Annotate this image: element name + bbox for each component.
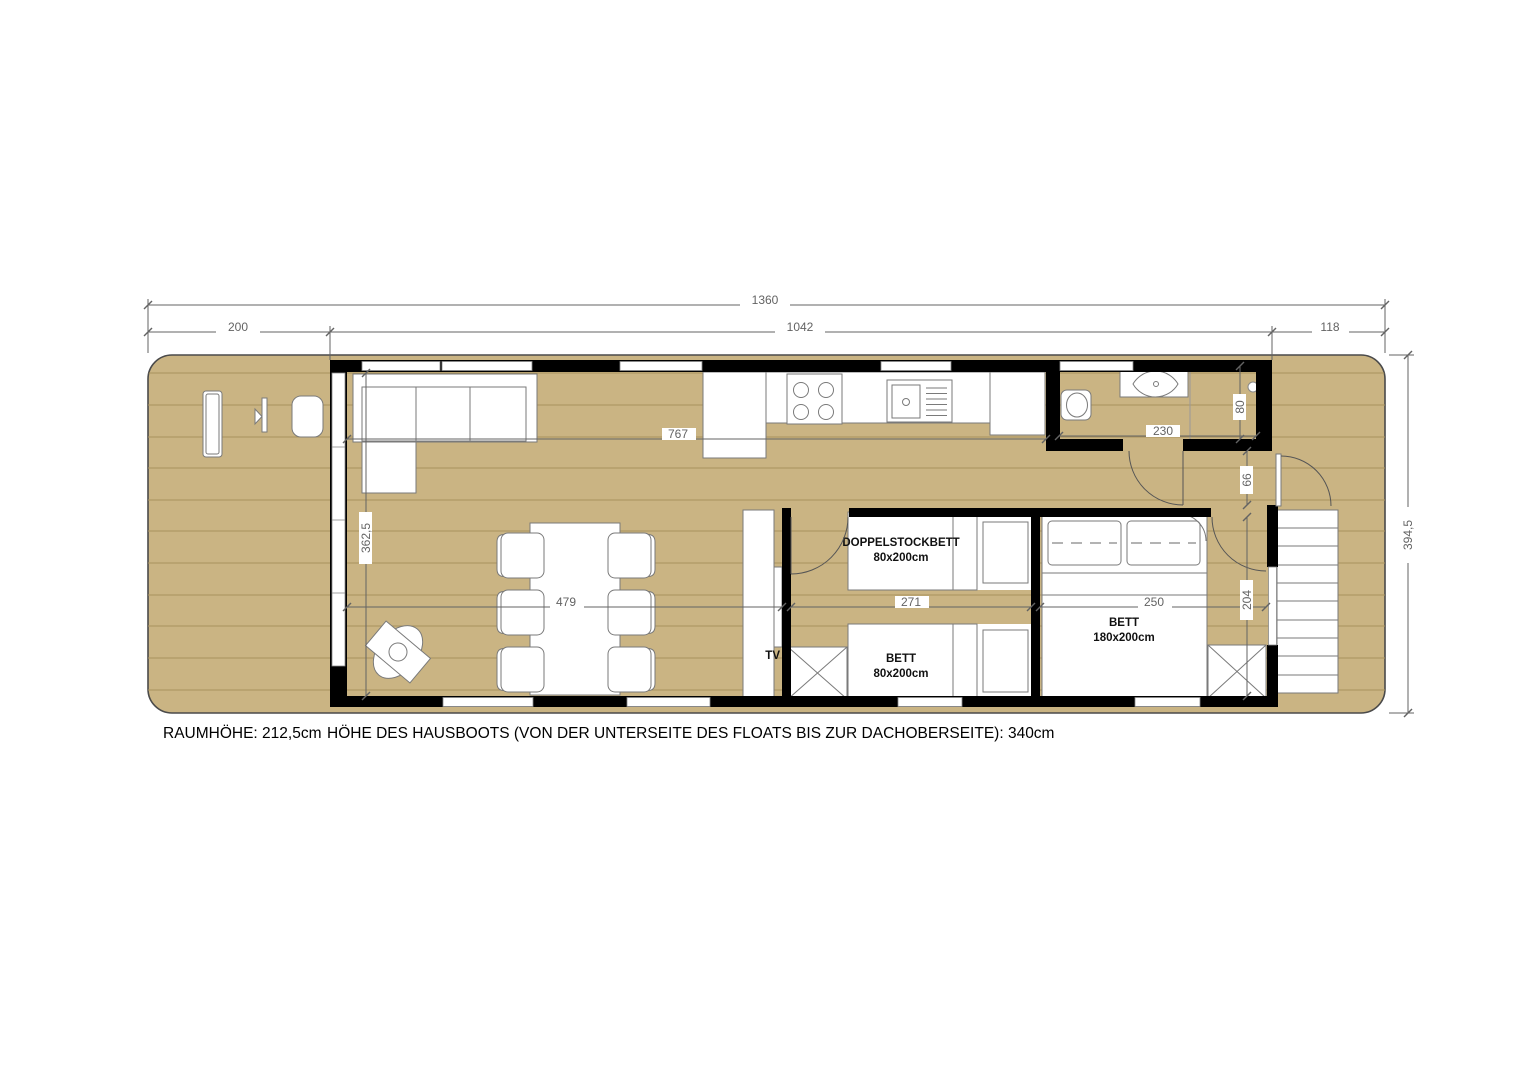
- master-bed: [1042, 513, 1207, 698]
- dim-cabin: 1042: [787, 320, 814, 334]
- dim-master-l: 250: [1144, 595, 1164, 609]
- toilet: [1061, 390, 1091, 420]
- dim-living-w: 362,5: [359, 523, 373, 553]
- tv-label: TV: [765, 650, 780, 662]
- window-bottom-master: [1135, 698, 1200, 707]
- window-rear: [1269, 567, 1277, 645]
- note-room-height: RAUMHÖHE: 212,5cm: [163, 724, 321, 742]
- dim-aft: 118: [1320, 320, 1339, 334]
- dim-shower: 80: [1233, 400, 1247, 414]
- window-bottom-2: [627, 698, 710, 707]
- kitchen-tall-unit: [703, 372, 766, 458]
- dim-terrace: 200: [228, 320, 248, 334]
- dim-living-l: 479: [556, 595, 576, 609]
- dim-total: 1360: [752, 293, 779, 307]
- deck-door-leaf: [1276, 454, 1281, 506]
- window-top-3: [620, 362, 702, 371]
- terrace-chair: [262, 398, 267, 432]
- bunk-bed: [848, 512, 977, 590]
- glazed-front-doors: [332, 373, 345, 666]
- window-top-2: [442, 362, 532, 371]
- chair: [608, 533, 651, 578]
- chair: [501, 590, 544, 635]
- chair: [501, 533, 544, 578]
- dim-hall: 66: [1240, 473, 1254, 487]
- floor-plan-canvas: TV DOPPELSTOCKBETT 80: [0, 0, 1527, 1080]
- terrace-stool: [292, 396, 323, 437]
- sofa-chaise: [362, 442, 416, 493]
- bunk-bed-label: DOPPELSTOCKBETT: [842, 537, 959, 549]
- wall-bath-bottom-left: [1046, 439, 1123, 451]
- kitchen-end-unit: [990, 372, 1045, 435]
- dim-kitchen: 767: [668, 427, 688, 441]
- chair: [501, 647, 544, 692]
- wall-rear-mid: [1267, 505, 1278, 567]
- stairs: [1277, 510, 1338, 693]
- wall-bedrooms-top: [849, 508, 1211, 517]
- wall-rear-lower: [1267, 645, 1278, 707]
- window-bottom-1: [443, 698, 533, 707]
- window-top-kitchen: [881, 362, 951, 371]
- tv-cabinet: [743, 510, 774, 698]
- single-bed-label: BETT: [886, 653, 916, 665]
- dim-master-w: 204: [1240, 590, 1254, 610]
- master-bed-size: 180x200cm: [1093, 632, 1154, 644]
- sofa: [353, 374, 537, 442]
- dim-kids: 271: [901, 595, 921, 609]
- window-top-bathroom: [1060, 362, 1133, 371]
- chair: [608, 647, 651, 692]
- dim-beam: 394,5: [1401, 520, 1415, 550]
- dim-bath: 230: [1153, 424, 1173, 438]
- single-bed-size: 80x200cm: [874, 668, 929, 680]
- master-bed-label: BETT: [1109, 617, 1139, 629]
- note-boat-height: HÖHE DES HAUSBOOTS (VON DER UNTERSEITE D…: [327, 724, 1054, 742]
- chair: [608, 590, 651, 635]
- bunk-bed-size: 80x200cm: [874, 552, 929, 564]
- window-bottom-kids: [898, 698, 962, 707]
- window-top-1: [362, 362, 440, 371]
- wall-rear-upper: [1256, 360, 1272, 451]
- floor-plan-page: TV DOPPELSTOCKBETT 80: [0, 0, 1527, 1080]
